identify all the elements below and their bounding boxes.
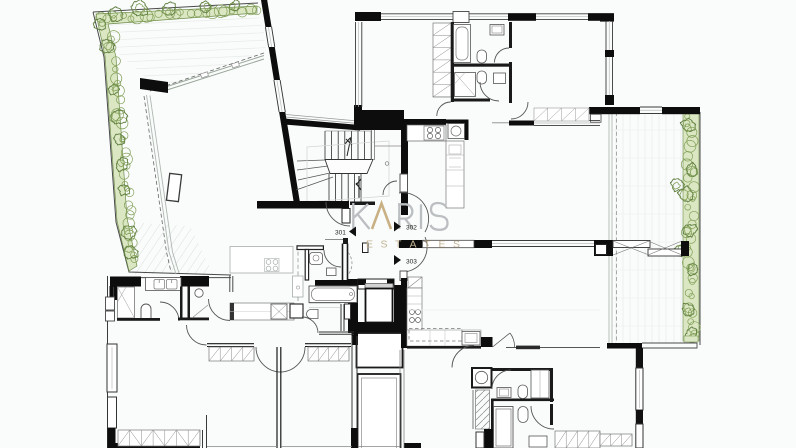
svg-text:T: T (424, 239, 431, 251)
svg-text:T: T (395, 239, 402, 251)
svg-text:302: 302 (406, 225, 417, 232)
svg-text:301: 301 (335, 230, 346, 237)
svg-text:E: E (439, 239, 446, 251)
svg-text:303: 303 (406, 259, 417, 266)
svg-text:S: S (453, 239, 460, 251)
svg-text:S: S (381, 239, 388, 251)
svg-text:A: A (410, 239, 417, 251)
svg-text:E: E (366, 239, 373, 251)
